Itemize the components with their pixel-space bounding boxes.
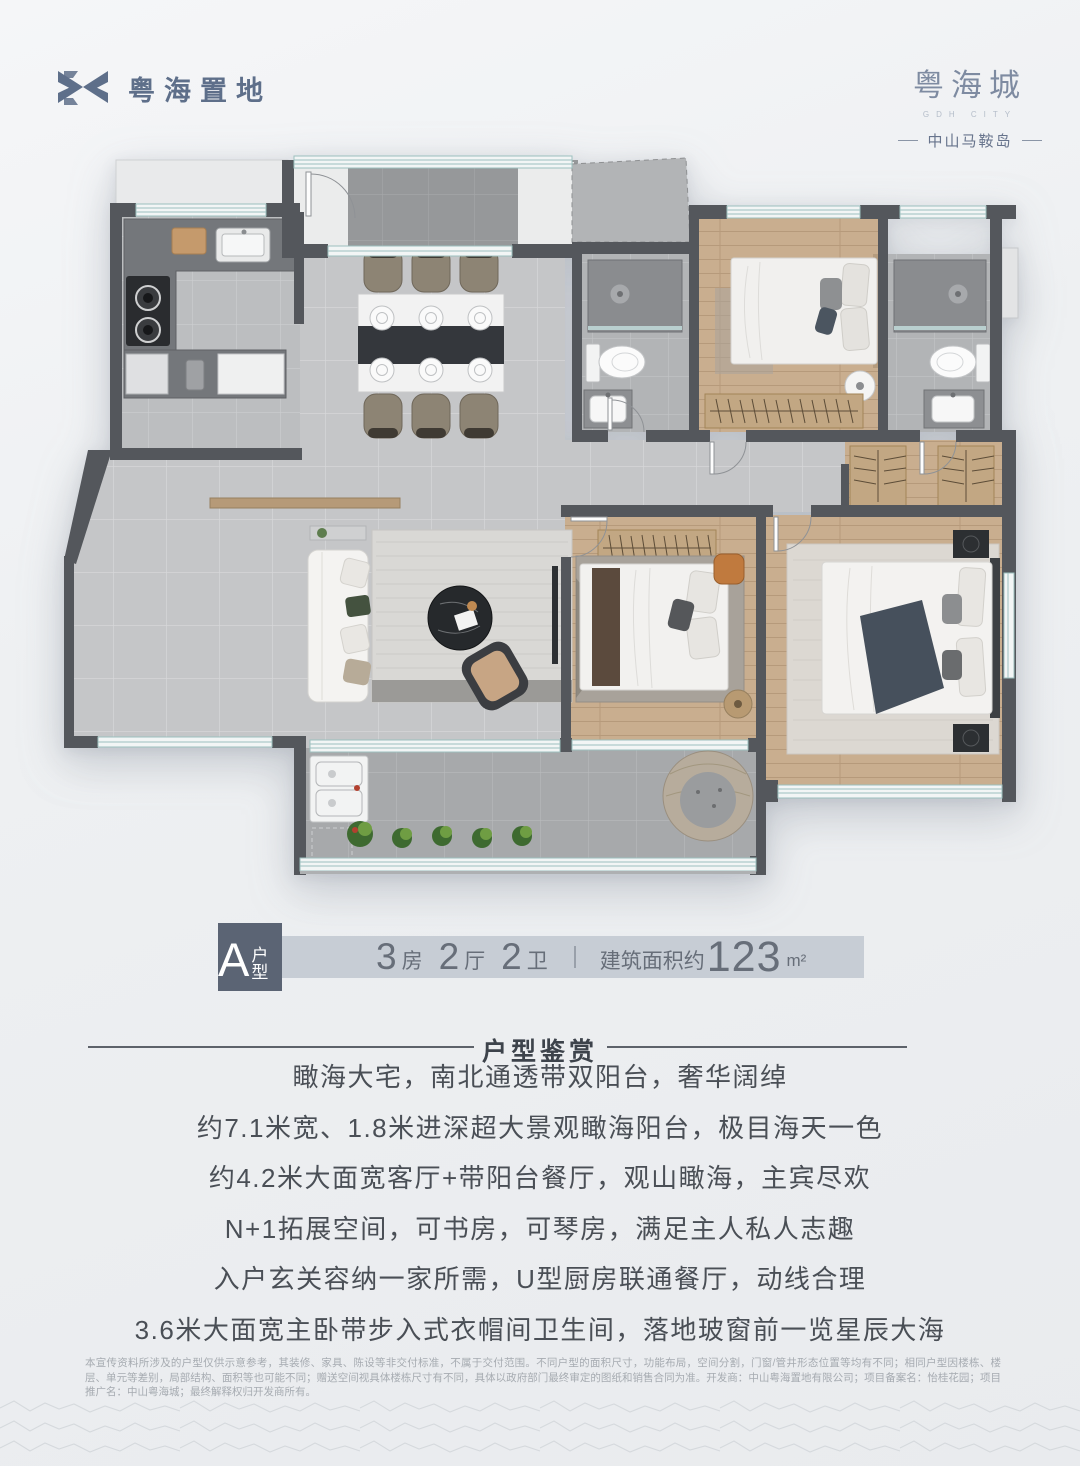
feature-list: 瞰海大宅，南北通透带双阳台，奢华阔绰 约7.1米宽、1.8米进深超大景观瞰海阳台… — [0, 1052, 1080, 1355]
developer-logo: 粤海置地 — [56, 68, 272, 108]
feature-line: N+1拓展空间，可书房，可琴房，满足主人私人志趣 — [0, 1204, 1080, 1255]
feature-line: 3.6米大面宽主卧带步入式衣帽间卫生间，落地玻窗前一览星辰大海 — [0, 1305, 1080, 1356]
feature-line: 瞰海大宅，南北通透带双阳台，奢华阔绰 — [0, 1052, 1080, 1103]
feature-line: 约7.1米宽、1.8米进深超大景观瞰海阳台，极目海天一色 — [0, 1103, 1080, 1154]
spec-divider — [574, 946, 576, 968]
unit-type-suffix: 户型 — [251, 947, 282, 981]
cutting-board — [172, 228, 206, 254]
right-ledge — [1002, 248, 1018, 318]
shower-2 — [894, 260, 986, 332]
developer-logo-text: 粤海置地 — [128, 69, 272, 108]
small-appliance — [186, 360, 204, 390]
project-logo-title: 粤海城 — [880, 60, 1060, 105]
bed3-stool — [714, 554, 744, 584]
rooms-unit: 房 — [402, 945, 423, 975]
baths-count: 2 — [501, 936, 522, 978]
unit-type-letter: A — [218, 929, 249, 991]
kitchen-cabinet — [218, 354, 284, 394]
dining-set — [358, 248, 504, 438]
dash-right — [1022, 140, 1042, 141]
project-logo-subtitle: GDH CITY — [880, 110, 1060, 119]
unit-spec-bar: A 户型 3 房 2 厅 2 卫 建筑面积约 123 m² — [218, 923, 864, 991]
master-nightstand-2 — [953, 724, 989, 752]
bed3-throw — [592, 568, 620, 686]
wave-decoration — [0, 1386, 1080, 1466]
floorplan-image — [60, 148, 1020, 908]
rooms-count: 3 — [376, 936, 397, 978]
halls-unit: 厅 — [464, 945, 485, 975]
balcony-railing-edge — [300, 871, 756, 874]
bedroom-2 — [705, 254, 881, 428]
console-shelf — [210, 498, 400, 508]
poster-page: 粤海置地 粤海城 GDH CITY 中山马鞍岛 — [0, 0, 1080, 1466]
area-unit: m² — [786, 951, 806, 971]
area-value: 123 — [707, 933, 782, 982]
hallway-floor — [565, 440, 845, 512]
ac-platform — [572, 158, 690, 242]
baths-unit: 卫 — [527, 945, 548, 975]
area-prefix: 建筑面积约 — [600, 945, 705, 975]
unit-spec-strip: 3 房 2 厅 2 卫 建筑面积约 123 m² — [282, 936, 864, 978]
project-logo: 粤海城 GDH CITY 中山马鞍岛 — [880, 60, 1060, 151]
master-bedroom — [787, 530, 1000, 754]
unit-type-badge: A 户型 — [218, 923, 282, 991]
potted-plant-small — [317, 528, 327, 538]
hanging-egg-chair — [663, 751, 753, 841]
tv — [552, 566, 558, 664]
bowtie-logo-icon — [56, 68, 110, 108]
feature-line: 约4.2米大面宽客厅+带阳台餐厅，观山瞰海，主宾尽欢 — [0, 1153, 1080, 1204]
bed2-wardrobe-rack — [705, 394, 863, 428]
master-nightstand-1 — [953, 530, 989, 558]
fridge — [126, 354, 168, 394]
shower-1 — [588, 260, 682, 332]
dash-left — [898, 140, 918, 141]
feature-line: 入户玄关容纳一家所需，U型厨房联通餐厅，动线合理 — [0, 1254, 1080, 1305]
kitchen-exterior-ledge — [116, 160, 288, 205]
halls-count: 2 — [439, 936, 460, 978]
bedroom-3 — [576, 530, 752, 718]
